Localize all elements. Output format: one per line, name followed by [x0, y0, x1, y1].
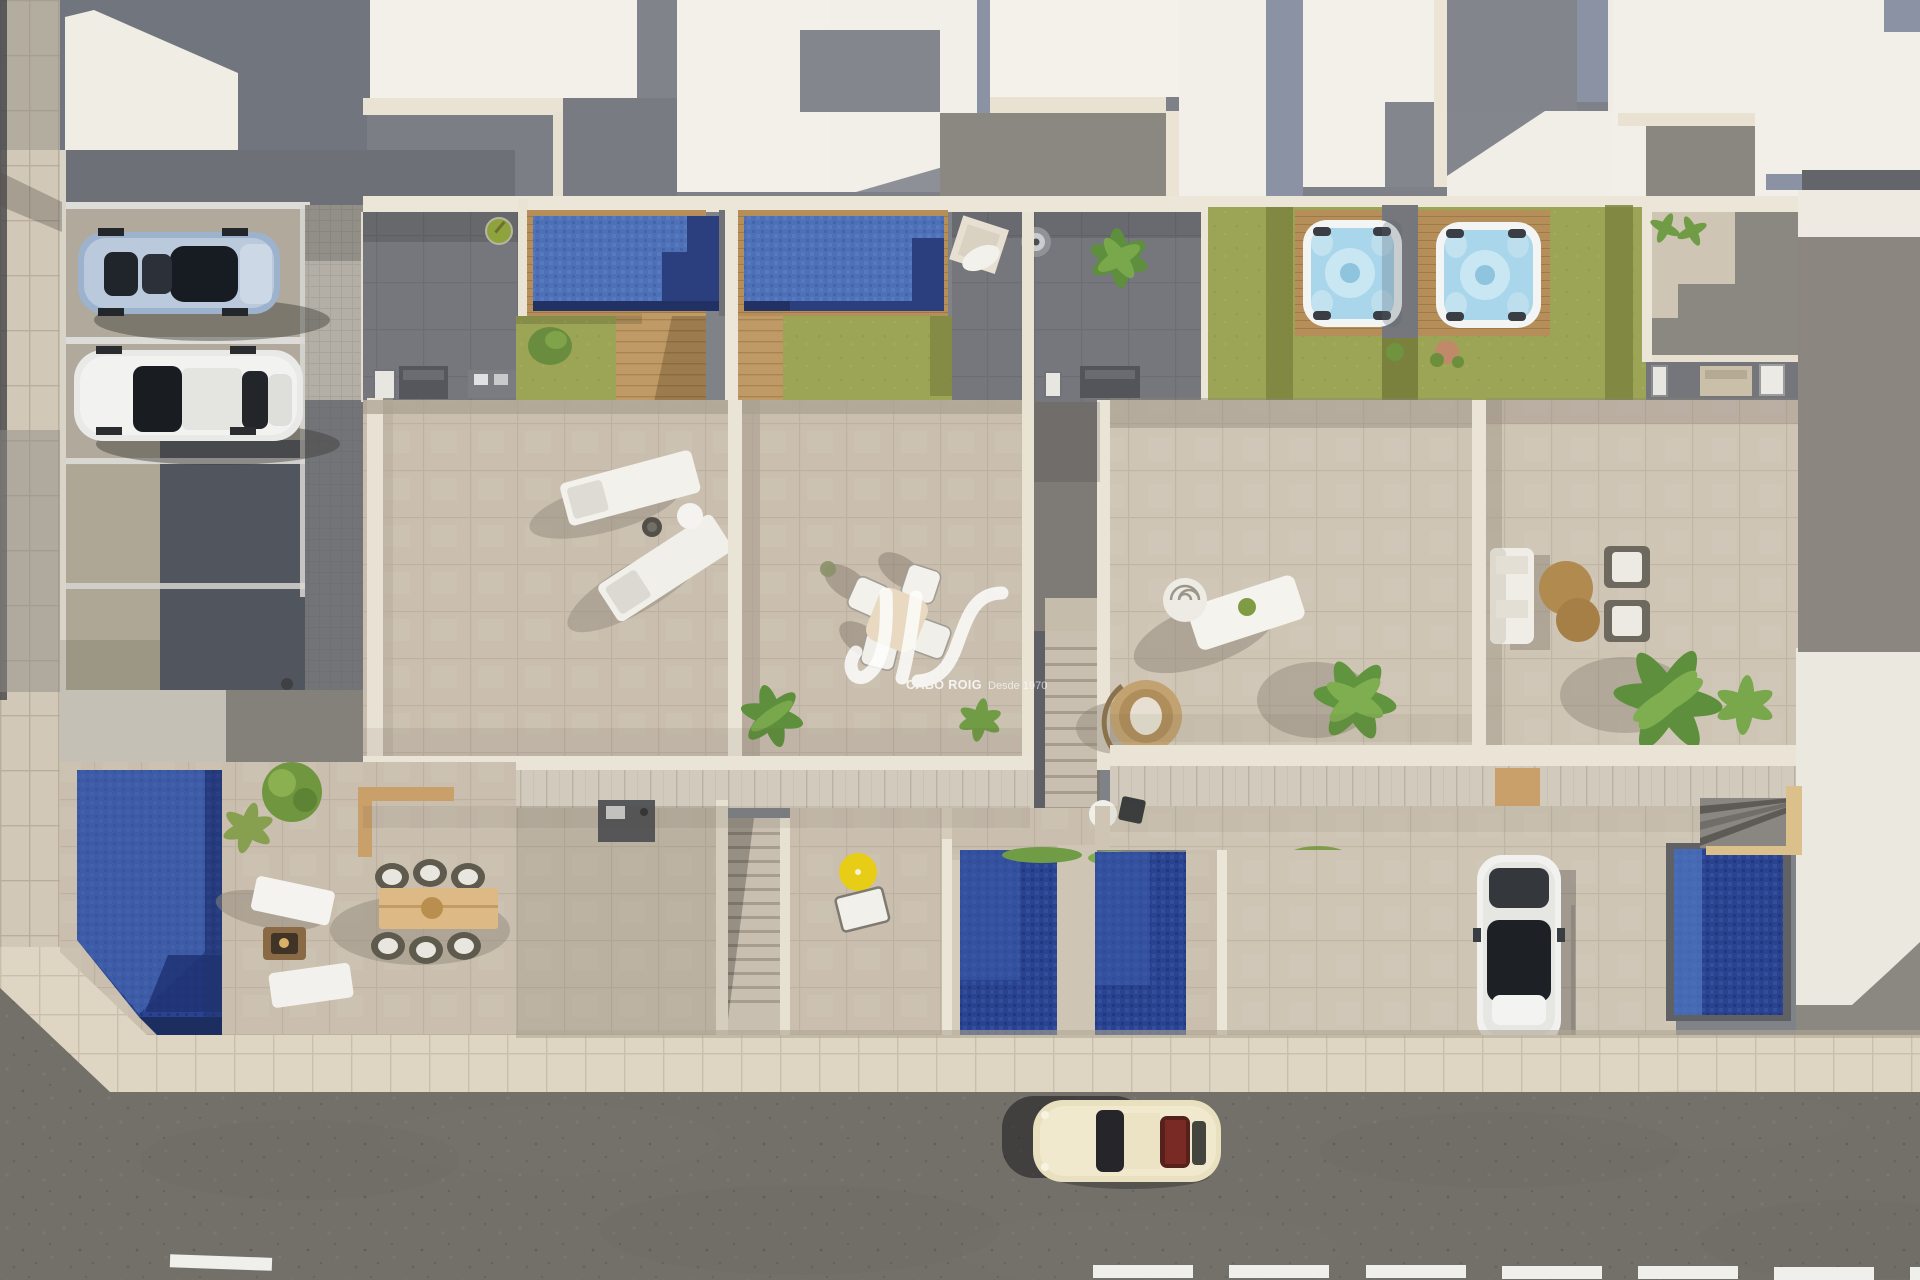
svg-text:CABO ROIG: CABO ROIG: [906, 678, 982, 692]
svg-text:Desde 1970: Desde 1970: [988, 680, 1047, 692]
